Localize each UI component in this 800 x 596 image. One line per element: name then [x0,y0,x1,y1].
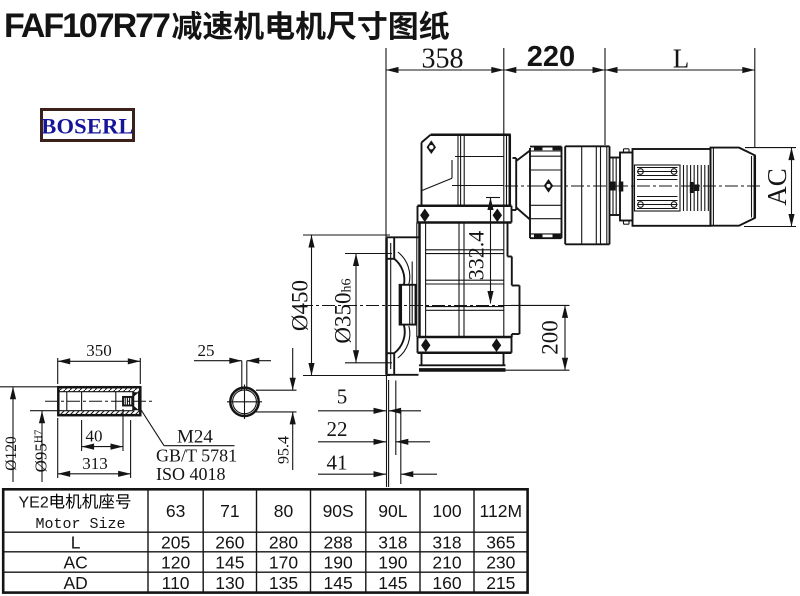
svg-text:135: 135 [269,573,298,593]
svg-text:220: 220 [527,41,575,73]
svg-text:Ø350h6: Ø350h6 [331,278,356,343]
svg-text:L: L [673,44,690,74]
svg-text:200: 200 [538,320,563,355]
svg-text:318: 318 [378,532,407,552]
svg-text:GB/T 5781: GB/T 5781 [156,446,237,466]
svg-text:318: 318 [432,532,461,552]
svg-text:95.4: 95.4 [276,436,293,464]
svg-text:110: 110 [162,573,190,593]
svg-text:215: 215 [486,573,515,593]
svg-text:AD: AD [63,573,87,593]
svg-text:90S: 90S [323,501,354,521]
svg-text:120: 120 [161,553,190,573]
svg-text:190: 190 [378,553,407,573]
svg-text:ISO 4018: ISO 4018 [156,464,226,484]
svg-text:5: 5 [337,385,348,409]
svg-text:YE2: YE2 [19,495,49,512]
svg-text:71: 71 [220,501,239,521]
svg-text:AC: AC [63,553,87,573]
svg-text:358: 358 [422,44,464,75]
svg-text:313: 313 [82,454,108,473]
svg-text:170: 170 [269,553,298,573]
svg-text:41: 41 [327,451,348,475]
svg-text:40: 40 [86,427,103,446]
svg-text:FAF107R77: FAF107R77 [4,7,170,45]
svg-text:145: 145 [378,573,407,593]
svg-text:365: 365 [486,532,515,552]
svg-text:145: 145 [324,573,353,593]
svg-text:230: 230 [486,553,515,573]
svg-text:160: 160 [432,573,461,593]
svg-text:80: 80 [274,501,294,521]
svg-text:280: 280 [269,532,298,552]
svg-text:190: 190 [324,553,353,573]
svg-text:260: 260 [215,532,244,552]
svg-text:Ø120: Ø120 [3,436,20,471]
svg-text:L: L [71,532,81,552]
svg-text:Ø95H7: Ø95H7 [32,429,51,472]
svg-text:210: 210 [432,553,461,573]
svg-text:Ø450: Ø450 [288,280,313,331]
svg-text:BOSERL: BOSERL [41,114,134,139]
svg-text:25: 25 [198,341,215,360]
svg-text:22: 22 [327,417,348,441]
svg-text:288: 288 [324,532,353,552]
svg-text:130: 130 [215,573,244,593]
svg-text:63: 63 [166,501,185,521]
svg-text:350: 350 [86,341,112,360]
svg-text:Motor Size: Motor Size [36,516,126,533]
svg-text:90L: 90L [378,501,407,521]
svg-text:M24: M24 [177,427,213,448]
svg-text:112M: 112M [480,501,522,521]
svg-text:332.4: 332.4 [464,231,489,281]
svg-text:145: 145 [215,553,244,573]
svg-text:100: 100 [432,501,461,521]
svg-text:AC: AC [762,168,792,206]
svg-text:205: 205 [161,532,190,552]
